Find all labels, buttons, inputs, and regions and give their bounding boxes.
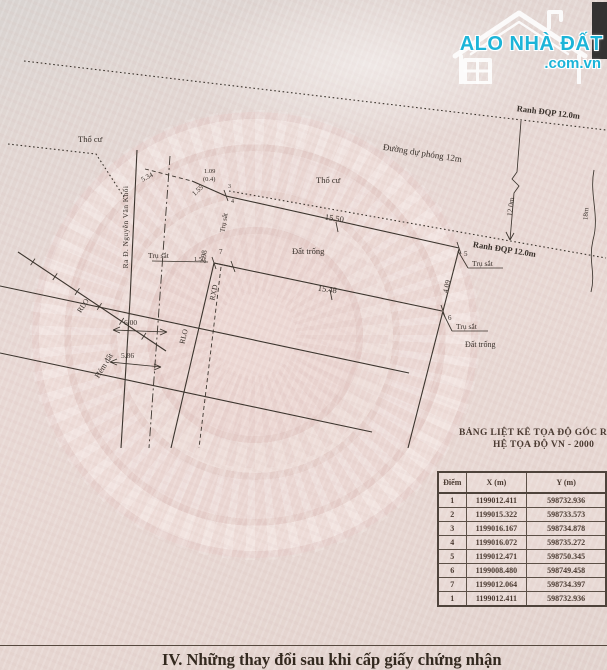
drawing-labels: Thổ cư Thổ cư Đường dự phóng 12m Ranh ĐQ…: [75, 103, 590, 379]
table-title-line1: BẢNG LIỆT KÊ TỌA ĐỘ GÓC RANH: [459, 428, 607, 438]
dim-04: (0.4): [203, 176, 215, 183]
label-ranh-dqp-1: Ranh ĐQP 12.0m: [516, 103, 580, 121]
dim-road-width: 12.0m: [505, 197, 516, 217]
point-3: 3: [228, 184, 231, 190]
point-4: 4: [231, 199, 234, 205]
section-divider: [0, 645, 607, 646]
dim-600: 6.00: [124, 318, 137, 327]
dim-534: 5.34: [140, 171, 155, 184]
label-tru-sat-p5: Trụ sắt: [472, 259, 494, 268]
col-header-y: Y (m): [527, 472, 606, 493]
label-rxd: RXD: [208, 283, 220, 301]
logo-domain-text: .com.vn: [544, 55, 601, 72]
table-title-line2: HỆ TỌA ĐỘ VN - 2000: [493, 440, 594, 450]
alonhadat-watermark: ALO NHÀ ĐẤT .com.vn: [449, 2, 607, 84]
col-header-x: X (m): [466, 472, 527, 493]
label-duong-du-phong: Đường dự phóng 12m: [382, 142, 462, 164]
point-5: 5: [464, 250, 468, 258]
table-row: 21199015.322598733.573: [438, 508, 606, 522]
label-rlo-2: RLO: [177, 327, 190, 344]
label-tho-cu-1: Thổ cư: [78, 134, 103, 144]
dim-right-edge: 4.09: [441, 279, 453, 294]
label-dat-trong-1: Đất trống: [292, 246, 325, 256]
logo-brand-text: ALO NHÀ ĐẤT: [460, 33, 603, 56]
dim-586: 5.86: [121, 351, 134, 360]
label-dat-trong-2: Đất trống: [465, 340, 495, 349]
point-7: 7: [219, 248, 223, 256]
dim-lane-width: 18m: [582, 207, 591, 221]
table-row: 31199016.167598734.878: [438, 522, 606, 536]
point-6: 6: [448, 314, 452, 322]
table-row: 41199016.072598735.272: [438, 536, 606, 550]
dim-top-edge: 15.50: [324, 212, 344, 225]
table-row: 51199012.471598750.345: [438, 550, 606, 564]
table-row: 11199012.411598732.936: [438, 592, 606, 607]
coordinate-table: Điểm X (m) Y (m) 11199012.411598732.936 …: [437, 471, 607, 607]
table-row: 71199012.064598734.397: [438, 578, 606, 592]
label-tho-cu-2: Thổ cư: [316, 175, 341, 185]
table-row: 11199012.411598732.936: [438, 493, 606, 508]
dim-bottom-edge: 15.48: [317, 283, 337, 296]
label-street-name: Ra Đ. Nguyễn Văn Khối: [121, 186, 130, 269]
table-row: 61199008.480598749.458: [438, 564, 606, 578]
col-header-diem: Điểm: [438, 472, 466, 493]
label-tru-sat-corner: Trụ sắt: [218, 212, 229, 233]
dim-150: 1.50: [194, 256, 205, 263]
table-header-row: Điểm X (m) Y (m): [438, 472, 606, 493]
certificate-photo: Thổ cư Thổ cư Đường dự phóng 12m Ranh ĐQ…: [0, 0, 607, 670]
label-ranh-dqp-2: Ranh ĐQP 12.0m: [472, 239, 536, 259]
label-tru-sat-left: Trụ sắt: [148, 251, 170, 260]
label-tru-sat-p6: Trụ sắt: [456, 322, 478, 331]
dim-109: 1.09: [204, 168, 215, 175]
section-heading: IV. Những thay đổi sau khi cấp giấy chứn…: [162, 650, 502, 670]
